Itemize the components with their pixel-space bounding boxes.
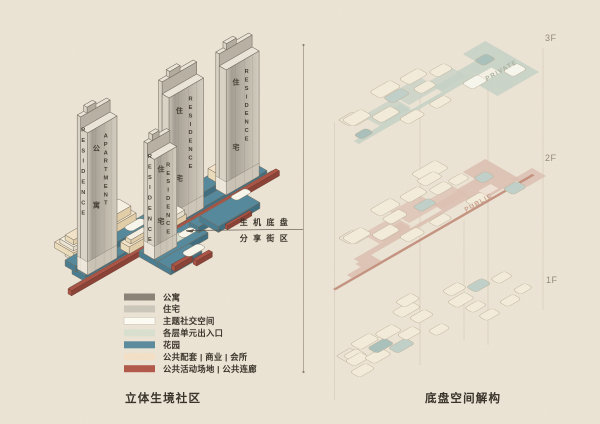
- svg-text:底盘空间解构: 底盘空间解构: [425, 391, 501, 405]
- svg-text:RESIDENCE: RESIDENCE: [81, 128, 85, 217]
- svg-text:宅: 宅: [233, 142, 240, 151]
- svg-text:住宅: 住宅: [163, 304, 181, 314]
- svg-text:花园: 花园: [163, 340, 180, 350]
- svg-text:RESIDENCE: RESIDENCE: [245, 69, 249, 142]
- svg-text:宅: 宅: [158, 217, 165, 226]
- svg-text:住: 住: [158, 165, 165, 174]
- svg-text:分享街区: 分享街区: [240, 233, 293, 243]
- svg-text:住: 住: [176, 106, 183, 115]
- svg-text:公共配套 | 商业 | 会所: 公共配套 | 商业 | 会所: [163, 352, 248, 362]
- svg-text:2F: 2F: [545, 153, 557, 163]
- svg-text:3F: 3F: [545, 33, 557, 43]
- svg-text:立体生境社区: 立体生境社区: [125, 391, 201, 405]
- svg-text:公: 公: [93, 145, 100, 153]
- svg-text:1F: 1F: [546, 275, 558, 285]
- svg-text:主题社交空间: 主题社交空间: [163, 316, 215, 326]
- svg-text:生机底盘: 生机底盘: [240, 217, 293, 227]
- svg-text:各层单元出入口: 各层单元出入口: [162, 328, 223, 338]
- svg-text:住: 住: [233, 77, 240, 86]
- svg-text:RESIDENCE: RESIDENCE: [188, 97, 192, 170]
- svg-text:公共活动场地 | 公共连廊: 公共活动场地 | 公共连廊: [163, 364, 257, 374]
- svg-text:寓: 寓: [93, 200, 100, 209]
- svg-text:公寓: 公寓: [163, 292, 180, 302]
- svg-text:RESIDENCE: RESIDENCE: [166, 162, 170, 235]
- svg-text:RESIDENCE: RESIDENCE: [148, 154, 152, 243]
